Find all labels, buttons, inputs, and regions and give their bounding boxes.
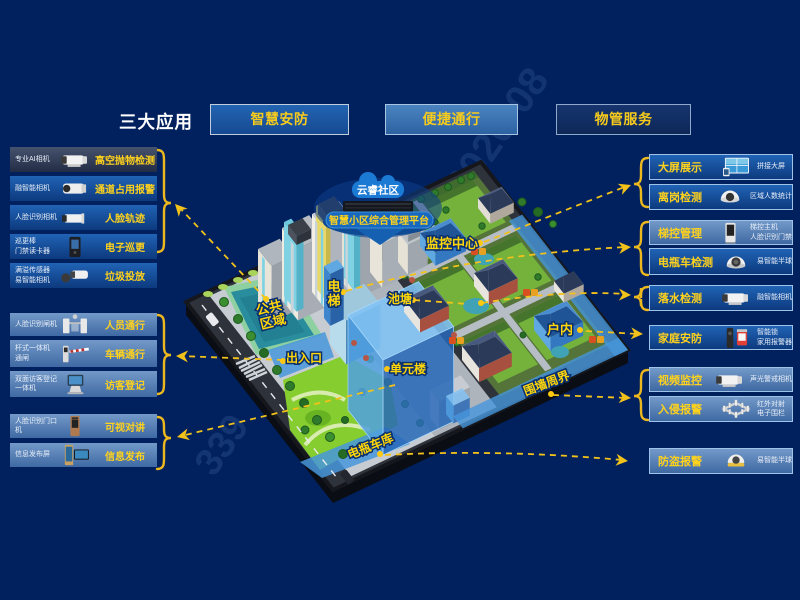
svg-text:出入口: 出入口 [286, 350, 322, 365]
svg-text:智慧小区综合管理平台: 智慧小区综合管理平台 [329, 214, 429, 227]
svg-text:339: 339 [187, 407, 258, 483]
svg-text:池塘: 池塘 [388, 291, 412, 306]
svg-text:单元楼: 单元楼 [390, 361, 426, 376]
svg-text:监控中心: 监控中心 [426, 236, 478, 251]
svg-text:电: 电 [327, 279, 340, 294]
svg-text:户内: 户内 [547, 322, 573, 337]
svg-text:云睿社区: 云睿社区 [357, 184, 399, 197]
svg-text:梯: 梯 [327, 293, 340, 308]
